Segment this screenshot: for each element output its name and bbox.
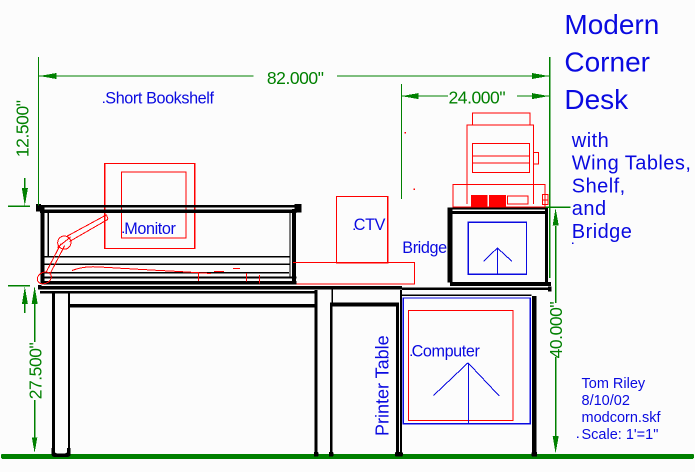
- svg-text:Monitor: Monitor: [124, 220, 176, 238]
- svg-text:8/10/02: 8/10/02: [582, 393, 630, 409]
- svg-text:Printer Table: Printer Table: [373, 335, 393, 436]
- svg-text:27.500": 27.500": [26, 342, 46, 399]
- svg-text:Bridge: Bridge: [402, 239, 447, 257]
- svg-text:40.000": 40.000": [546, 302, 566, 359]
- svg-text:Modern: Modern: [564, 9, 659, 40]
- svg-text:CTV: CTV: [354, 216, 386, 234]
- svg-text:Short Bookshelf: Short Bookshelf: [105, 89, 214, 107]
- svg-text:Wing Tables,: Wing Tables,: [572, 153, 692, 175]
- svg-text:Scale: 1'=1": Scale: 1'=1": [582, 427, 659, 443]
- svg-text:12.500": 12.500": [12, 100, 32, 157]
- svg-text:with: with: [571, 130, 609, 152]
- svg-text:Corner: Corner: [564, 47, 650, 78]
- svg-text:Computer: Computer: [412, 343, 481, 361]
- svg-text:modcorn.skf: modcorn.skf: [582, 410, 662, 426]
- svg-text:Shelf,: Shelf,: [572, 175, 626, 197]
- svg-text:Desk: Desk: [564, 84, 629, 115]
- svg-text:Bridge: Bridge: [572, 221, 633, 243]
- svg-text:24.000": 24.000": [449, 88, 506, 108]
- svg-text:Tom Riley: Tom Riley: [582, 376, 646, 392]
- svg-text:and: and: [572, 198, 607, 220]
- svg-text:82.000": 82.000": [267, 68, 324, 88]
